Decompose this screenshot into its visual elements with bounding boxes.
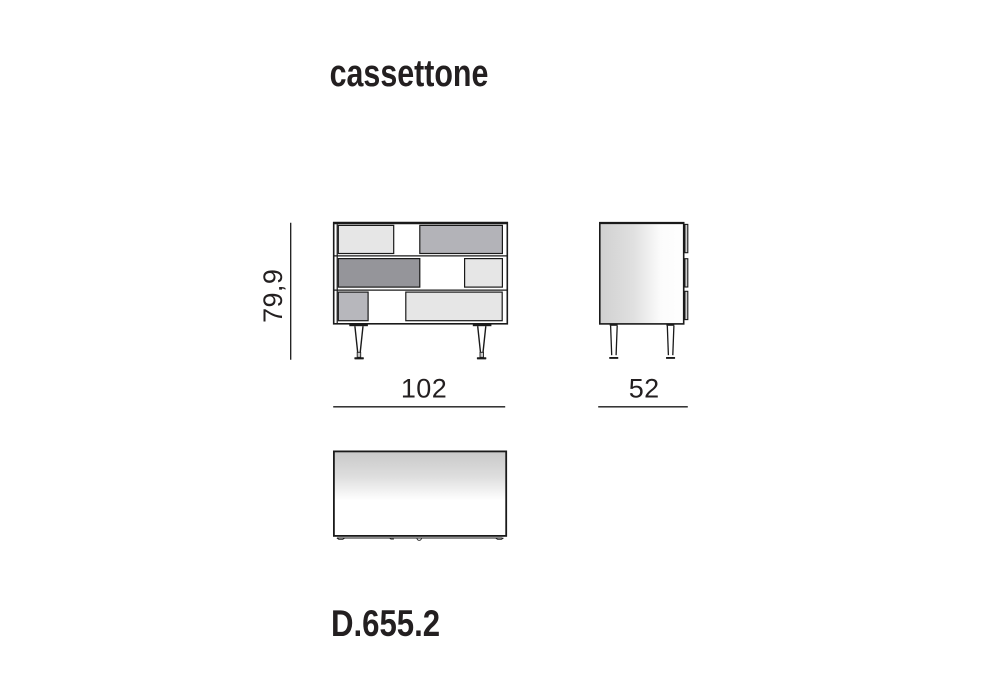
svg-text:79,9: 79,9 bbox=[258, 269, 288, 323]
svg-text:52: 52 bbox=[629, 374, 660, 404]
svg-text:D.655.2: D.655.2 bbox=[331, 603, 440, 644]
svg-text:cassettone: cassettone bbox=[330, 53, 489, 95]
svg-text:102: 102 bbox=[401, 374, 447, 404]
